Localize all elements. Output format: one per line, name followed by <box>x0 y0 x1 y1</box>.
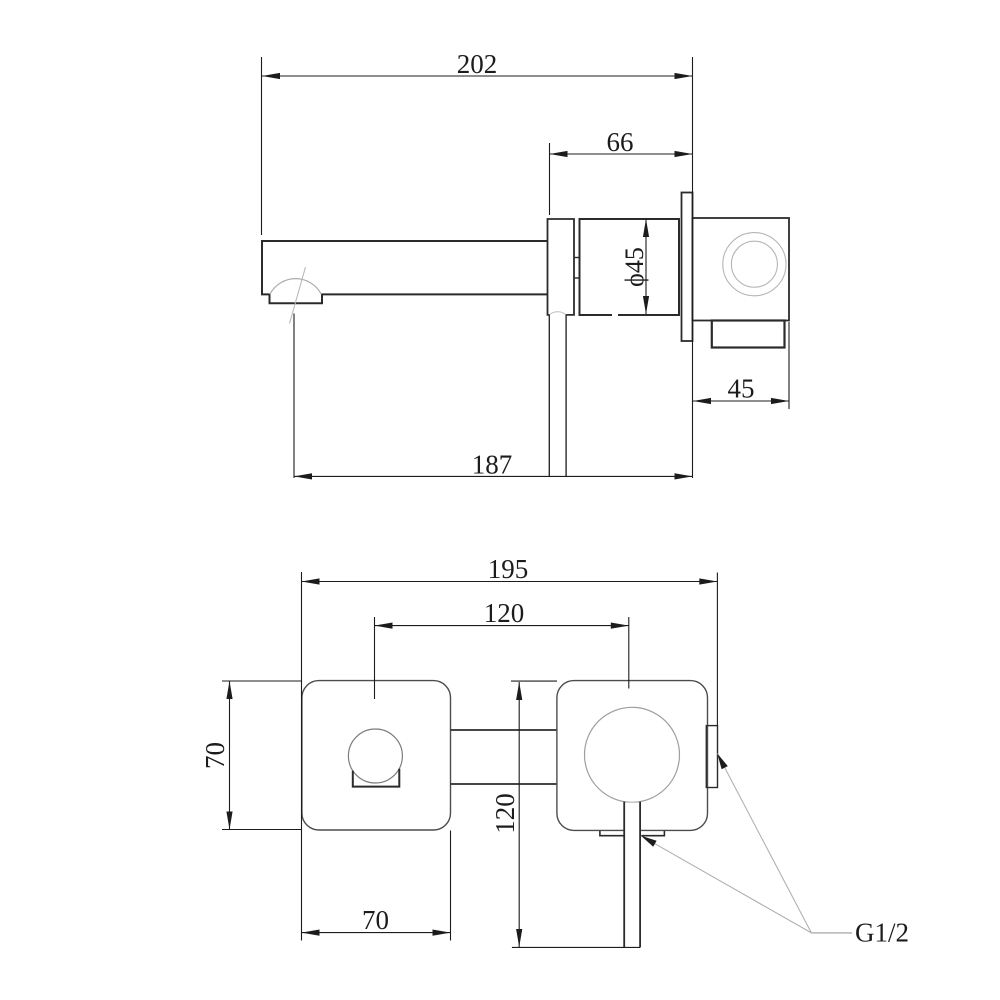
svg-text:195: 195 <box>488 554 529 584</box>
svg-text:187: 187 <box>472 450 513 480</box>
svg-text:ϕ45: ϕ45 <box>620 247 649 287</box>
svg-text:66: 66 <box>607 127 634 157</box>
svg-text:120: 120 <box>484 598 525 628</box>
svg-text:202: 202 <box>457 49 498 79</box>
svg-text:70: 70 <box>362 905 389 935</box>
svg-text:70: 70 <box>200 742 230 769</box>
svg-text:45: 45 <box>728 374 755 404</box>
svg-text:120: 120 <box>490 793 520 834</box>
svg-text:G1/2: G1/2 <box>855 918 909 948</box>
